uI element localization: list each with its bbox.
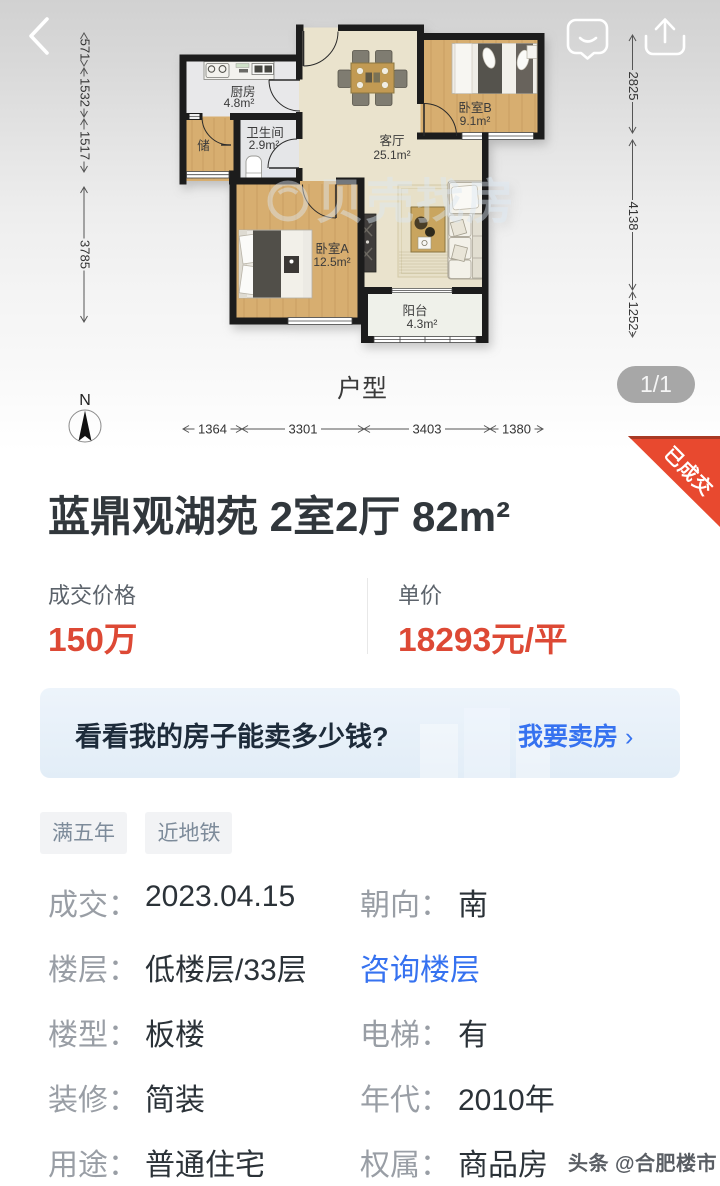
svg-text:4.3m²: 4.3m² bbox=[407, 317, 438, 331]
svg-text:储: 储 bbox=[197, 138, 210, 153]
svg-text:贝壳找房: 贝壳找房 bbox=[316, 176, 516, 229]
svg-text:N: N bbox=[79, 392, 91, 409]
svg-text:1517: 1517 bbox=[78, 131, 93, 160]
svg-text:1/1: 1/1 bbox=[640, 371, 672, 397]
svg-text:571: 571 bbox=[78, 39, 93, 61]
svg-text:1380: 1380 bbox=[502, 422, 531, 437]
svg-text:1252: 1252 bbox=[626, 302, 641, 331]
svg-text:4138: 4138 bbox=[626, 202, 641, 231]
svg-text:4.8m²: 4.8m² bbox=[224, 96, 255, 110]
svg-text:客厅: 客厅 bbox=[379, 133, 404, 148]
svg-text:2.9m²: 2.9m² bbox=[249, 138, 280, 152]
svg-text:3785: 3785 bbox=[78, 240, 93, 269]
svg-text:9.1m²: 9.1m² bbox=[460, 114, 491, 128]
svg-text:卧室A: 卧室A bbox=[315, 241, 349, 256]
svg-text:25.1m²: 25.1m² bbox=[373, 148, 410, 162]
svg-text:12.5m²: 12.5m² bbox=[313, 255, 350, 269]
svg-text:卧室B: 卧室B bbox=[458, 100, 491, 115]
svg-text:3403: 3403 bbox=[413, 422, 442, 437]
svg-text:户型: 户型 bbox=[337, 375, 387, 403]
svg-text:2825: 2825 bbox=[626, 72, 641, 101]
svg-text:1532: 1532 bbox=[78, 78, 93, 107]
svg-text:1364: 1364 bbox=[198, 422, 227, 437]
svg-text:3301: 3301 bbox=[289, 422, 318, 437]
svg-text:阳台: 阳台 bbox=[402, 303, 427, 318]
